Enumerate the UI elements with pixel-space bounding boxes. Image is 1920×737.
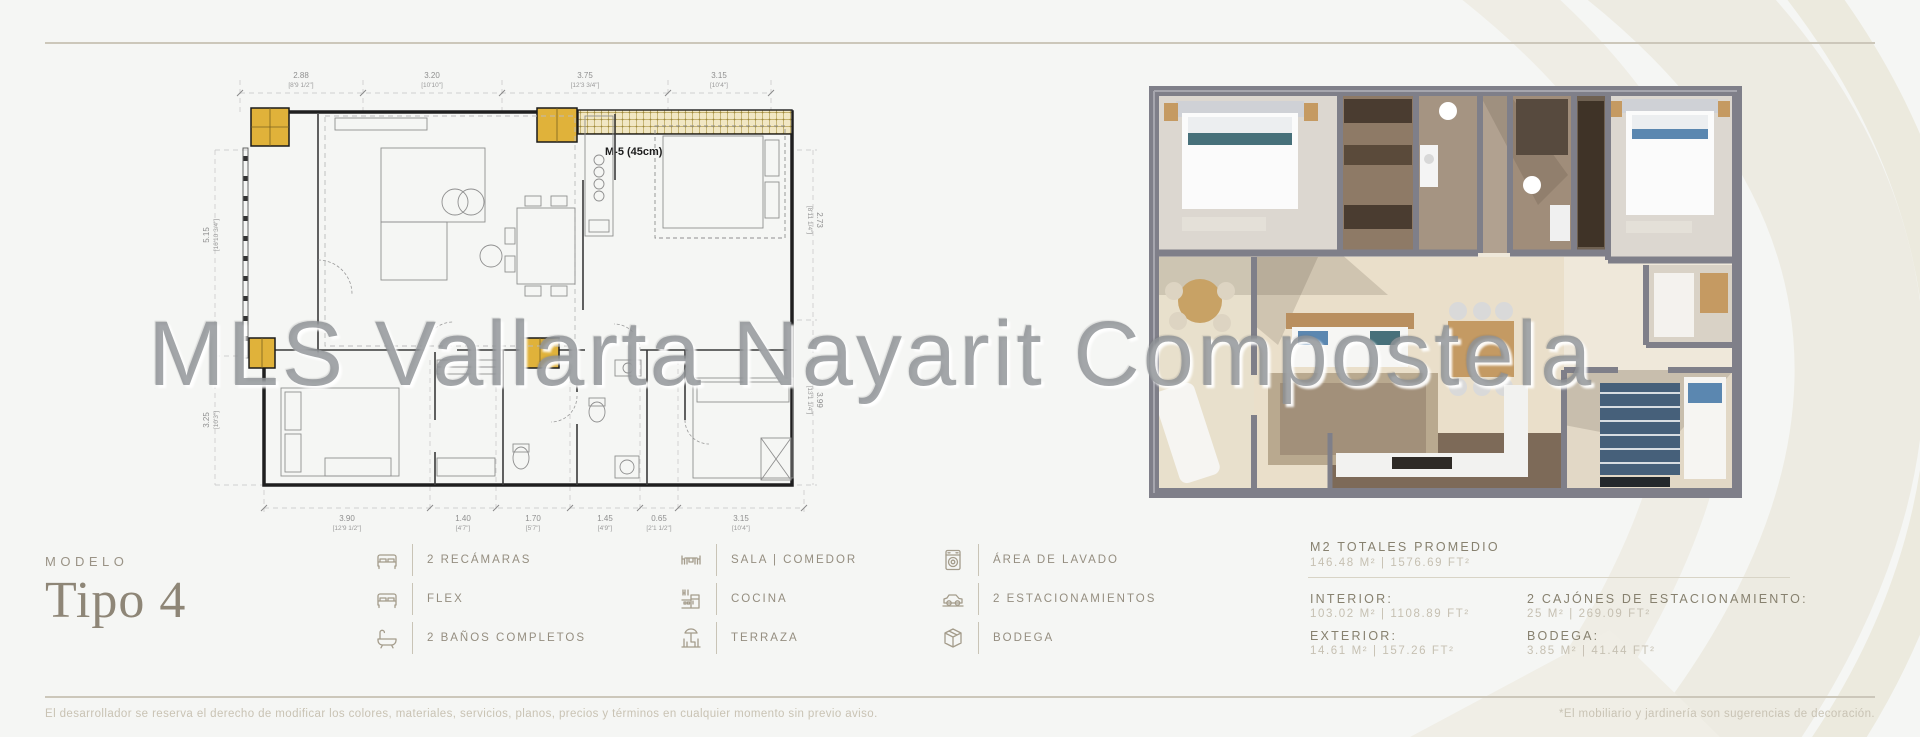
feature-cocina: COCINA — [676, 585, 857, 613]
dining-icon — [676, 548, 706, 572]
feature-label: 2 ESTACIONAMIENTOS — [993, 593, 1156, 605]
feature-flex: FLEX — [372, 585, 586, 613]
dimension-guides — [215, 80, 817, 512]
bottom-dimensions: 3.90 [12'9 1/2"] 1.40 [4'7"] 1.70 [5'7"]… — [333, 514, 751, 532]
footer-disclaimer: El desarrollador se reserva el derecho d… — [45, 708, 878, 720]
feature-label: BODEGA — [993, 632, 1054, 644]
exterior-value: 14.61 M² | 157.26 FT² — [1310, 645, 1455, 657]
beam-m5 — [578, 110, 792, 134]
svg-text:0.65: 0.65 — [651, 514, 667, 523]
feature-label: COCINA — [731, 593, 788, 605]
svg-text:[5'7"]: [5'7"] — [526, 525, 541, 532]
top-divider-line — [45, 42, 1875, 44]
plan-furniture — [281, 116, 793, 480]
svg-text:[10'4"]: [10'4"] — [710, 82, 728, 89]
dimension-ticks — [237, 90, 807, 511]
svg-text:3.15: 3.15 — [733, 514, 749, 523]
interior-label: INTERIOR: — [1310, 592, 1393, 606]
feature-sala-comedor: SALA | COMEDOR — [676, 546, 857, 574]
svg-text:[8'9 1/2"]: [8'9 1/2"] — [288, 82, 313, 89]
feature-area-lavado: ÁREA DE LAVADO — [938, 546, 1156, 574]
storage-label: BODEGA: — [1527, 629, 1599, 643]
svg-text:2.73: 2.73 — [815, 212, 824, 228]
feature-column-2: SALA | COMEDOR COCINA TERRAZA — [676, 546, 857, 652]
feature-terraza: TERRAZA — [676, 624, 857, 652]
interior-value: 103.02 M² | 1108.89 FT² — [1310, 608, 1470, 620]
kitchen-icon — [676, 587, 706, 611]
svg-text:[10'4"]: [10'4"] — [732, 525, 750, 532]
parking-label: 2 CAJÓNES DE ESTACIONAMIENTO: — [1527, 592, 1808, 606]
stats-divider-line — [1308, 577, 1790, 578]
svg-text:3.75: 3.75 — [577, 71, 593, 80]
total-area-label: M2 TOTALES PROMEDIO — [1310, 540, 1500, 554]
feature-label: ÁREA DE LAVADO — [993, 554, 1119, 566]
feature-column-3: ÁREA DE LAVADO 2 ESTACIONAMIENTOS BODEGA — [938, 546, 1156, 652]
feature-recamaras: 2 RECÁMARAS — [372, 546, 586, 574]
model-label: MODELO — [45, 554, 186, 569]
feature-label: FLEX — [427, 593, 464, 605]
svg-text:3.90: 3.90 — [339, 514, 355, 523]
parking-value: 25 M² | 269.09 FT² — [1527, 608, 1651, 620]
exterior-label: EXTERIOR: — [1310, 629, 1397, 643]
render-floorplan — [1148, 85, 1743, 500]
bed-icon — [372, 587, 402, 611]
svg-text:[4'9"]: [4'9"] — [598, 525, 613, 532]
svg-text:2.88: 2.88 — [293, 71, 309, 80]
footer-note: *El mobiliario y jardinería son sugerenc… — [1559, 708, 1875, 720]
svg-text:5.15: 5.15 — [202, 227, 211, 243]
svg-text:1.45: 1.45 — [597, 514, 613, 523]
feature-estacionamientos: 2 ESTACIONAMIENTOS — [938, 585, 1156, 613]
feature-column-1: 2 RECÁMARAS FLEX 2 BAÑOS COMPLETOS — [372, 546, 586, 652]
svg-text:[4'7"]: [4'7"] — [456, 525, 471, 532]
car-icon — [938, 587, 968, 611]
laundry-icon — [938, 548, 968, 572]
bathtub-icon — [372, 626, 402, 650]
svg-text:3.20: 3.20 — [424, 71, 440, 80]
svg-text:1.40: 1.40 — [455, 514, 471, 523]
beam-label: M-5 (45cm) — [605, 146, 663, 158]
svg-text:1.70: 1.70 — [525, 514, 541, 523]
svg-text:3.15: 3.15 — [711, 71, 727, 80]
storage-value: 3.85 M² | 41.44 FT² — [1527, 645, 1656, 657]
technical-floorplan: 2.88 [8'9 1/2"] 3.20 [10'10"] 3.75 [12'3… — [185, 60, 825, 540]
total-area-value: 146.48 M² | 1576.69 FT² — [1310, 557, 1471, 569]
bottom-divider-line — [45, 696, 1875, 698]
svg-text:[10'10"]: [10'10"] — [421, 82, 443, 89]
brochure-page: 2.88 [8'9 1/2"] 3.20 [10'10"] 3.75 [12'3… — [0, 0, 1920, 737]
svg-text:[12'9 1/2"]: [12'9 1/2"] — [333, 525, 362, 532]
model-title-block: MODELO Tipo 4 — [45, 554, 186, 630]
watermark-text: MLS Vallarta Nayarit Compostela — [148, 302, 1594, 407]
svg-text:[2'1 1/2"]: [2'1 1/2"] — [646, 525, 671, 532]
bed-icon — [372, 548, 402, 572]
feature-label: 2 BAÑOS COMPLETOS — [427, 632, 586, 644]
top-dimensions: 2.88 [8'9 1/2"] 3.20 [10'10"] 3.75 [12'3… — [288, 71, 728, 89]
svg-text:[12'3 3/4"]: [12'3 3/4"] — [571, 82, 600, 89]
svg-text:[16'10 3/4"]: [16'10 3/4"] — [213, 219, 220, 252]
feature-bodega: BODEGA — [938, 624, 1156, 652]
feature-banos: 2 BAÑOS COMPLETOS — [372, 624, 586, 652]
terrace-icon — [676, 626, 706, 650]
svg-text:[10'3"]: [10'3"] — [213, 411, 220, 429]
svg-text:[8'11 1/4"]: [8'11 1/4"] — [806, 206, 813, 235]
model-name: Tipo 4 — [45, 571, 186, 630]
feature-label: 2 RECÁMARAS — [427, 554, 531, 566]
svg-text:3.25: 3.25 — [202, 412, 211, 428]
box-icon — [938, 626, 968, 650]
interior-walls — [251, 114, 792, 485]
feature-label: SALA | COMEDOR — [731, 554, 857, 566]
feature-label: TERRAZA — [731, 632, 799, 644]
